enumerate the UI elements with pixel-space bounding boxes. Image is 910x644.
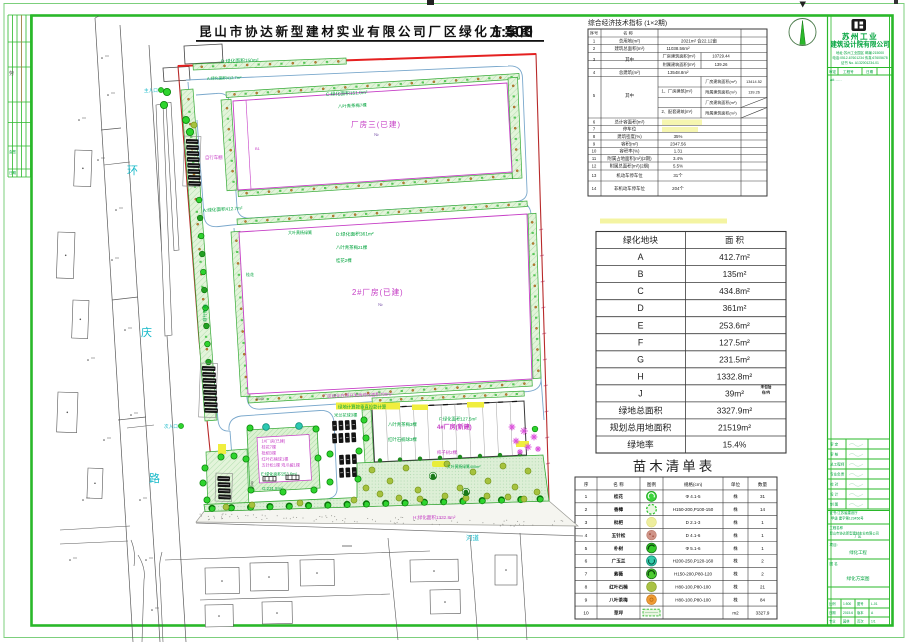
svg-text:米兰花球3棵: 米兰花球3棵: [334, 412, 358, 419]
svg-text:2140: 2140: [250, 481, 254, 489]
svg-text:五针松: 五针松: [612, 532, 626, 539]
svg-text:11038.56m²: 11038.56m²: [666, 46, 690, 51]
svg-text:附属总面积(m²)(2期): 附属总面积(m²)(2期): [610, 163, 650, 170]
svg-text:绿化工程: 绿化工程: [849, 549, 867, 556]
svg-text:2021m² 合22.12亩: 2021m² 合22.12亩: [681, 38, 717, 45]
svg-text:15.4%: 15.4%: [723, 440, 747, 450]
svg-text:审定: 审定: [829, 69, 837, 74]
svg-text:株: 株: [733, 571, 738, 578]
svg-text:35%: 35%: [674, 134, 683, 139]
svg-text:231.5m²: 231.5m²: [719, 354, 750, 364]
svg-text:厂房建筑面积(m²): 厂房建筑面积(m²): [705, 99, 737, 105]
svg-text:Φ 5.1-6: Φ 5.1-6: [685, 546, 701, 551]
svg-text:审 定: 审 定: [830, 442, 839, 447]
svg-text:B: B: [638, 269, 644, 279]
svg-text:a#……: a#……: [830, 78, 842, 82]
svg-text:H: H: [637, 371, 643, 381]
svg-text:F: F: [638, 337, 644, 347]
svg-text:大叶黄杨绿篱: 大叶黄杨绿篱: [288, 229, 312, 235]
svg-text:次入口: 次入口: [164, 423, 178, 430]
svg-text:2: 2: [585, 507, 588, 513]
svg-text:校 对: 校 对: [830, 482, 839, 487]
svg-text:4#厂房(新建): 4#厂房(新建): [437, 423, 472, 431]
svg-text:机动车停车位: 机动车停车位: [616, 172, 643, 179]
svg-text:其中: 其中: [625, 92, 634, 99]
svg-text:草坪: 草坪: [614, 609, 624, 616]
svg-text:7: 7: [585, 572, 588, 578]
svg-text:9: 9: [585, 597, 588, 603]
svg-text:苏州工业: 苏州工业: [842, 31, 878, 41]
svg-text:3327.9: 3327.9: [756, 610, 770, 615]
svg-text:桂花7棵: 桂花7棵: [262, 444, 277, 450]
svg-text:日期: 日期: [866, 69, 874, 74]
svg-text:枇杷: 枇杷: [614, 519, 624, 526]
svg-text:数量: 数量: [758, 481, 768, 488]
svg-text:1:500: 1:500: [492, 24, 533, 41]
svg-text:工程号: 工程号: [843, 69, 854, 74]
svg-text:31个: 31个: [673, 173, 683, 178]
svg-text:D 2.1-3: D 2.1-3: [686, 520, 701, 525]
svg-text:139.26: 139.26: [748, 91, 760, 95]
svg-text:甲级 建字第123456号: 甲级 建字第123456号: [831, 516, 864, 521]
svg-text:2347.56: 2347.56: [670, 142, 686, 147]
svg-text:G:231.5m²: G:231.5m²: [262, 486, 283, 491]
svg-text:非机动车停车位: 非机动车停车位: [614, 185, 645, 192]
svg-text:日期: 日期: [9, 170, 16, 175]
svg-text:361m²: 361m²: [723, 303, 747, 313]
svg-text:设 计: 设 计: [830, 492, 839, 497]
svg-text:绿地计算按垂直投影计算: 绿地计算按垂直投影计算: [338, 404, 387, 411]
svg-text:14: 14: [592, 186, 597, 191]
svg-text:页次: 页次: [857, 619, 864, 624]
svg-text:主入口: 主入口: [144, 87, 158, 94]
svg-text:桂花2棵: 桂花2棵: [336, 257, 352, 264]
svg-text:8: 8: [585, 585, 588, 591]
svg-text:1#厂房(已建): 1#厂房(已建): [262, 438, 286, 444]
svg-text:1/1: 1/1: [871, 620, 876, 624]
svg-text:1332.8m²: 1332.8m²: [717, 371, 753, 381]
svg-text:大叶黄杨绿篱400m²: 大叶黄杨绿篱400m²: [447, 464, 481, 469]
svg-text:株: 株: [733, 545, 738, 552]
svg-text:图 名: 图 名: [830, 561, 839, 566]
svg-text:其中: 其中: [625, 56, 634, 63]
svg-text:附属占地面积(m²)(2期): 附属占地面积(m²)(2期): [607, 155, 652, 162]
svg-text:J: J: [638, 388, 642, 398]
svg-text:H150-200,P100-150: H150-200,P100-150: [673, 507, 714, 512]
svg-text:枇杷3棵: 枇杷3棵: [262, 450, 277, 456]
svg-text:5: 5: [585, 546, 588, 552]
svg-text:C: C: [637, 286, 644, 296]
svg-text:21: 21: [760, 585, 766, 590]
svg-text:八叶青茶梅3棵: 八叶青茶梅3棵: [388, 421, 417, 428]
svg-text:4: 4: [585, 533, 588, 539]
svg-text:规划总用地面积: 规划总用地面积: [610, 422, 672, 433]
svg-text:B1: B1: [255, 146, 261, 151]
svg-text:广玉兰: 广玉兰: [612, 558, 626, 565]
svg-text:84: 84: [760, 597, 766, 602]
svg-text:规格(cm): 规格(cm): [684, 481, 703, 488]
svg-text:H200-250,P120-160: H200-250,P120-160: [673, 559, 714, 564]
svg-text:D 4.1-6: D 4.1-6: [686, 533, 701, 538]
svg-text:株: 株: [733, 584, 738, 591]
svg-text:工程名称: 工程名称: [830, 525, 844, 530]
svg-text:停车位: 停车位: [623, 126, 637, 133]
svg-text:2015.6: 2015.6: [843, 611, 853, 615]
svg-text:H80-100,P80-100: H80-100,P80-100: [675, 597, 711, 602]
svg-text:D: D: [637, 303, 643, 313]
svg-text:H:绿化面积1332.8m²: H:绿化面积1332.8m²: [413, 514, 456, 521]
svg-text:路: 路: [149, 472, 160, 485]
svg-text:株: 株: [733, 506, 738, 513]
svg-text:综合经济技术指标 (1×2期): 综合经济技术指标 (1×2期): [588, 18, 667, 27]
svg-text:苗木清单表: 苗木清单表: [633, 459, 716, 474]
svg-text:m2: m2: [732, 610, 739, 615]
svg-text:Φ 4.1-5: Φ 4.1-5: [685, 494, 701, 499]
svg-text:11: 11: [592, 156, 597, 161]
svg-text:劳: 劳: [9, 70, 14, 77]
svg-text:总用地(m²): 总用地(m²): [619, 38, 641, 45]
svg-text:1: 1: [585, 494, 588, 500]
svg-text:№: №: [378, 302, 383, 307]
svg-text:证书:江苏省建设厅: 证书:江苏省建设厅: [830, 510, 859, 515]
svg-text:H80-100,P80-100: H80-100,P80-100: [675, 585, 711, 590]
svg-text:2140: 2140: [256, 397, 264, 401]
svg-text:№: №: [374, 132, 379, 137]
svg-text:3327.9m²: 3327.9m²: [717, 405, 753, 415]
svg-text:总计容面积(m²): 总计容面积(m²): [615, 119, 646, 126]
svg-text:五针松1棵 鸡爪槭1棵: 五针松1棵 鸡爪槭1棵: [262, 462, 300, 468]
svg-text:1:500: 1:500: [843, 602, 851, 606]
svg-text:单位: 单位: [731, 481, 741, 488]
svg-text:39m²: 39m²: [725, 388, 744, 398]
svg-text:红叶石楠: 红叶石楠: [609, 584, 628, 591]
svg-text:面 积: 面 积: [725, 235, 745, 245]
svg-text:6: 6: [585, 559, 588, 565]
svg-text:253.6m²: 253.6m²: [719, 320, 750, 330]
svg-text:容积(m²): 容积(m²): [621, 141, 638, 148]
svg-text:绿地率: 绿地率: [627, 439, 654, 450]
svg-text:127.5m²: 127.5m²: [719, 337, 750, 347]
svg-text:制 图: 制 图: [830, 502, 839, 507]
svg-text:2#厂房(已建): 2#厂房(已建): [352, 287, 403, 297]
svg-text:139.26: 139.26: [715, 62, 728, 67]
svg-text:会签: 会签: [9, 149, 16, 154]
svg-text:1.31: 1.31: [674, 149, 683, 154]
svg-text:A: A: [638, 252, 644, 262]
svg-text:序号: 序号: [590, 30, 598, 37]
svg-text:绿地总面积: 绿地总面积: [619, 404, 663, 415]
svg-text:10729.44: 10729.44: [712, 54, 730, 59]
svg-text:14: 14: [760, 507, 766, 512]
svg-text:名 称: 名 称: [613, 481, 624, 488]
svg-text:31: 31: [760, 494, 766, 499]
svg-text:图号: 图号: [857, 601, 864, 606]
svg-text:电话:0512-67601234 传真:67605678: 电话:0512-67601234 传真:67605678: [832, 55, 887, 60]
svg-text:证书 No. A132001234-01: 证书 No. A132001234-01: [841, 60, 879, 65]
svg-text:环: 环: [127, 165, 138, 177]
svg-text:香樟: 香樟: [613, 506, 624, 513]
svg-text:图例: 图例: [647, 481, 657, 488]
svg-text:红叶石楠球1棵: 红叶石楠球1棵: [262, 456, 289, 462]
svg-text:5.5%: 5.5%: [673, 164, 683, 169]
svg-text:G: G: [637, 354, 644, 364]
svg-text:3.4%: 3.4%: [673, 156, 683, 161]
svg-text:未包括: 未包括: [760, 384, 772, 389]
svg-text:自行车棚: 自行车棚: [205, 154, 223, 161]
svg-text:1、厂房建筑(m²): 1、厂房建筑(m²): [662, 88, 694, 95]
svg-text:名 称: 名 称: [623, 30, 633, 37]
svg-text:八叶青茶梅21棵: 八叶青茶梅21棵: [336, 244, 368, 251]
svg-text:专业: 专业: [829, 619, 836, 624]
svg-text:12: 12: [592, 164, 597, 169]
svg-text:总工程师: 总工程师: [830, 462, 845, 467]
svg-text:13: 13: [592, 173, 597, 178]
svg-text:附属建筑面积(m²): 附属建筑面积(m²): [705, 110, 737, 116]
svg-text:庆: 庆: [141, 325, 152, 339]
svg-text:柿子树2棵: 柿子树2棵: [437, 449, 458, 456]
svg-text:园林: 园林: [843, 619, 850, 624]
svg-text:2、配套建筑(m²): 2、配套建筑(m²): [662, 108, 694, 115]
svg-text:总建筑(m²): 总建筑(m²): [619, 69, 641, 76]
svg-text:朴树: 朴树: [614, 545, 624, 552]
svg-text:204个: 204个: [672, 186, 684, 191]
svg-text:412.7m²: 412.7m²: [719, 252, 750, 262]
svg-text:厂房建筑面积(m²): 厂房建筑面积(m²): [705, 78, 737, 84]
svg-text:附属建筑面积(m²): 附属建筑面积(m²): [705, 89, 737, 95]
svg-text:比例: 比例: [829, 601, 836, 606]
svg-text:L-01: L-01: [871, 602, 878, 606]
svg-text:绿化地块: 绿化地块: [623, 234, 658, 245]
svg-text:13548.8m²: 13548.8m²: [668, 70, 690, 75]
svg-text:容积率(%): 容积率(%): [619, 148, 640, 155]
svg-text:株: 株: [733, 532, 738, 539]
svg-text:八叶茶梅: 八叶茶梅: [608, 596, 628, 603]
svg-text:3: 3: [585, 520, 588, 526]
svg-text:审 核: 审 核: [830, 452, 839, 457]
svg-text:135m²: 135m²: [723, 269, 747, 279]
svg-text:桂花: 桂花: [246, 271, 254, 277]
svg-text:F:绿化面积127.5m²: F:绿化面积127.5m²: [439, 416, 477, 423]
svg-text:E: E: [638, 320, 644, 330]
svg-text:株: 株: [733, 519, 738, 526]
svg-text:A:绿化面积412.7m²: A:绿化面积412.7m²: [207, 74, 242, 81]
svg-text:绿化方案图: 绿化方案图: [847, 575, 870, 582]
svg-text:厂房三(已建): 厂房三(已建): [351, 119, 401, 129]
svg-text:株: 株: [733, 493, 738, 500]
svg-text:日期: 日期: [829, 610, 836, 615]
svg-text:版本: 版本: [857, 610, 864, 615]
svg-text:在/内: 在/内: [762, 390, 771, 395]
svg-text:红叶石楠球3棵: 红叶石楠球3棵: [388, 436, 417, 443]
svg-text:10: 10: [583, 610, 589, 616]
svg-text:河道: 河道: [466, 533, 480, 542]
svg-text:13414.52: 13414.52: [746, 80, 762, 84]
svg-text:10: 10: [592, 149, 597, 154]
svg-text:序: 序: [584, 481, 589, 488]
svg-text:建筑密度(%): 建筑密度(%): [617, 133, 642, 140]
svg-text:H150-200,P80-120: H150-200,P80-120: [674, 572, 713, 577]
svg-text:附属建筑面积(m²): 附属建筑面积(m²): [663, 61, 696, 68]
svg-text:紫薇: 紫薇: [614, 571, 624, 578]
svg-text:株: 株: [733, 596, 738, 603]
svg-text:项目:: 项目:: [830, 542, 838, 547]
svg-text:434.8m²: 434.8m²: [719, 286, 750, 296]
svg-text:21519m²: 21519m²: [718, 423, 751, 433]
svg-text:建筑设计院有限公司: 建筑设计院有限公司: [829, 40, 889, 49]
svg-text:厂区: 厂区: [855, 535, 862, 539]
svg-text:地址:苏州工业园区 邮编:215000: 地址:苏州工业园区 邮编:215000: [836, 50, 884, 55]
svg-text:桂花: 桂花: [613, 493, 624, 500]
svg-text:株: 株: [733, 558, 738, 565]
svg-text:建筑总面积(m²): 建筑总面积(m²): [615, 45, 646, 52]
svg-text:昆山市协达新型建材实业有限公司厂区绿化方案图: 昆山市协达新型建材实业有限公司厂区绿化方案图: [199, 24, 535, 39]
svg-text:专业负责: 专业负责: [830, 472, 845, 477]
svg-text:厂房建筑面积(m²): 厂房建筑面积(m²): [663, 53, 696, 60]
